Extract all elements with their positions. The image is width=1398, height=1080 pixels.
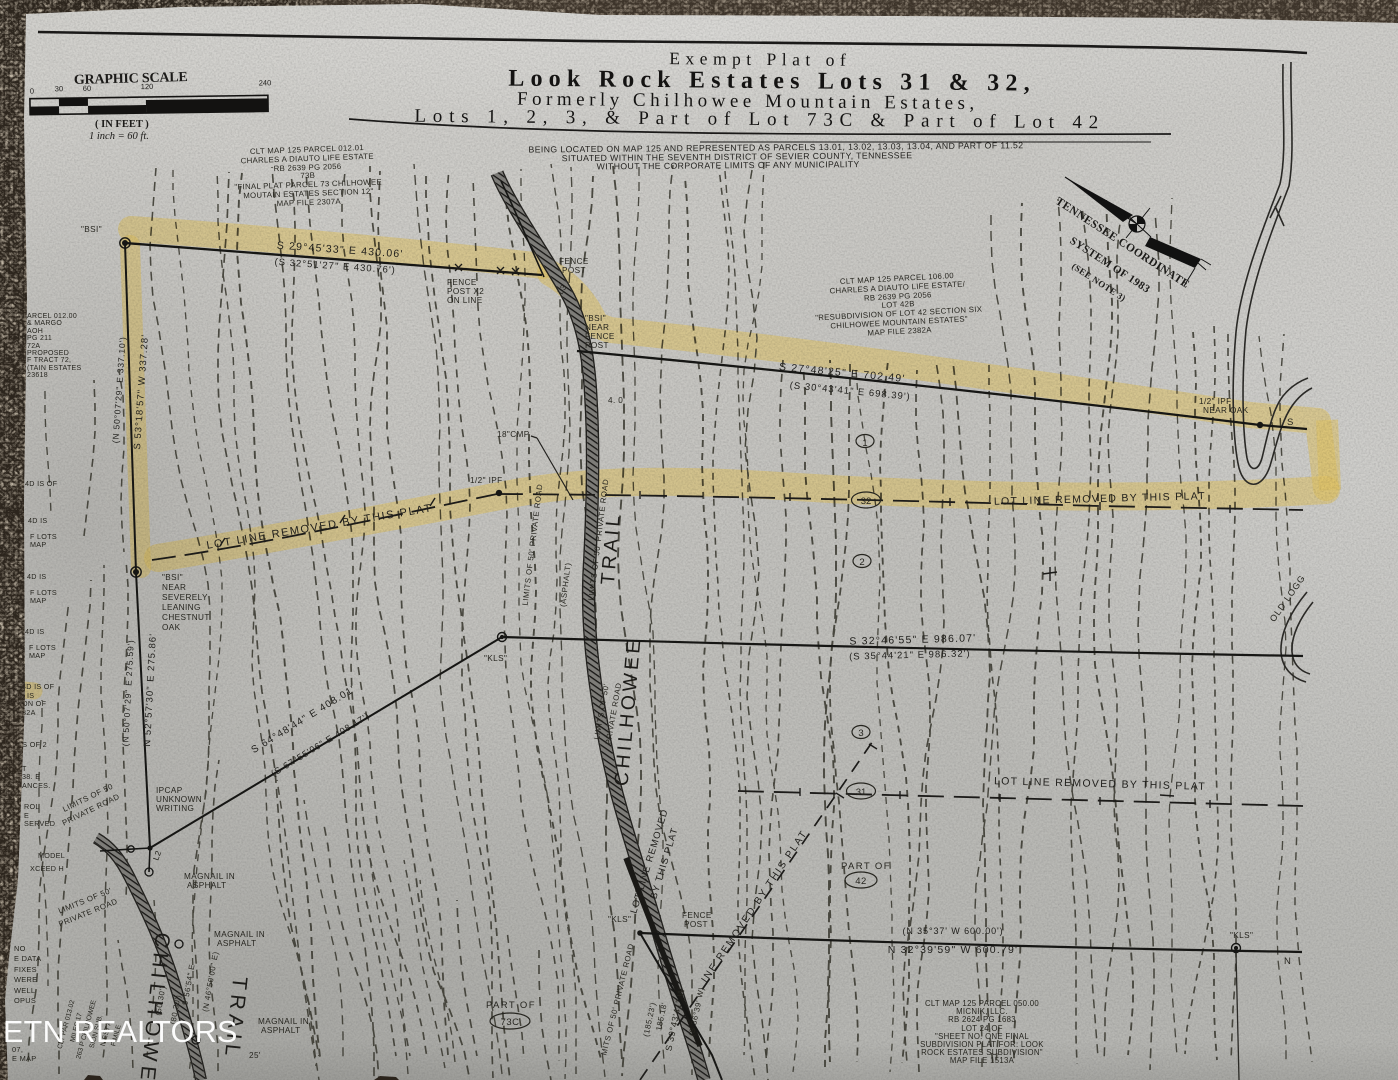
svg-text:ARCEL 012.00: ARCEL 012.00 bbox=[27, 313, 77, 320]
svg-text:NO: NO bbox=[14, 944, 26, 953]
svg-text:& MARGO: & MARGO bbox=[27, 320, 62, 327]
svg-text:NEAR: NEAR bbox=[585, 323, 609, 332]
svg-text:1 inch = 60 ft.: 1 inch = 60 ft. bbox=[89, 131, 149, 142]
svg-text:FENCE: FENCE bbox=[559, 257, 589, 266]
svg-text:S: S bbox=[1287, 417, 1294, 428]
svg-text:PART OF: PART OF bbox=[486, 1000, 536, 1011]
svg-text:MAP: MAP bbox=[30, 596, 46, 605]
svg-text:"KLS": "KLS" bbox=[608, 915, 631, 924]
svg-text:( IN FEET ): ( IN FEET ) bbox=[95, 119, 149, 130]
svg-text:ON LINE: ON LINE bbox=[447, 296, 483, 305]
svg-text:RB 2624 PG 1683: RB 2624 PG 1683 bbox=[948, 1015, 1016, 1024]
svg-text:MAP: MAP bbox=[30, 540, 46, 549]
svg-text:ON OF: ON OF bbox=[22, 699, 47, 708]
svg-text:IS OF 2: IS OF 2 bbox=[20, 740, 47, 749]
svg-text:18"CMP: 18"CMP bbox=[497, 430, 530, 439]
svg-text:2: 2 bbox=[859, 557, 864, 568]
svg-text:AOH: AOH bbox=[27, 328, 43, 335]
svg-text:73B: 73B bbox=[300, 171, 315, 181]
svg-text:FIXES: FIXES bbox=[14, 965, 37, 974]
svg-text:POST: POST bbox=[562, 266, 586, 275]
svg-text:3: 3 bbox=[858, 728, 863, 739]
svg-text:31: 31 bbox=[856, 787, 867, 798]
svg-text:"KLS": "KLS" bbox=[1230, 931, 1253, 940]
svg-text:WELL: WELL bbox=[14, 986, 35, 995]
svg-text:POST X2: POST X2 bbox=[447, 287, 484, 296]
svg-text:E DATA: E DATA bbox=[14, 954, 41, 963]
svg-text:F TRACT 72,: F TRACT 72, bbox=[27, 357, 71, 364]
svg-text:73C: 73C bbox=[501, 1017, 520, 1028]
svg-text:ASPHALT: ASPHALT bbox=[261, 1026, 301, 1035]
svg-text:240: 240 bbox=[259, 78, 272, 87]
svg-text:4D IS: 4D IS bbox=[28, 516, 47, 525]
svg-text:120: 120 bbox=[141, 82, 154, 91]
svg-text:SERVED: SERVED bbox=[24, 819, 55, 828]
svg-text:NEAR OAK: NEAR OAK bbox=[1203, 406, 1249, 415]
svg-text:ETN REALTORS: ETN REALTORS bbox=[3, 1015, 238, 1049]
svg-text:N 32°39'59" W 600.79': N 32°39'59" W 600.79' bbox=[888, 944, 1019, 956]
svg-text:38. E: 38. E bbox=[22, 772, 40, 781]
svg-text:SEVERELY: SEVERELY bbox=[162, 593, 208, 602]
svg-text:ANCES.: ANCES. bbox=[22, 781, 51, 790]
svg-text:OPUS: OPUS bbox=[14, 996, 36, 1005]
svg-text:FENCE: FENCE bbox=[682, 911, 712, 920]
svg-text:4D IS OF: 4D IS OF bbox=[25, 479, 58, 488]
svg-text:4. 0': 4. 0' bbox=[608, 396, 625, 405]
svg-text:4D IS: 4D IS bbox=[27, 572, 46, 581]
svg-text:NEAR: NEAR bbox=[162, 583, 186, 592]
svg-text:0: 0 bbox=[30, 87, 34, 96]
svg-text:PROPOSED: PROPOSED bbox=[27, 350, 69, 357]
svg-text:ASPHALT: ASPHALT bbox=[217, 939, 257, 948]
svg-text:IPCAP: IPCAP bbox=[156, 786, 183, 795]
svg-text:POST: POST bbox=[585, 341, 609, 350]
svg-text:"KLS": "KLS" bbox=[484, 654, 507, 663]
svg-text:"BSI": "BSI" bbox=[162, 573, 183, 582]
svg-text:WERE: WERE bbox=[14, 975, 37, 984]
svg-text:XCEED H: XCEED H bbox=[30, 864, 64, 873]
svg-text:CHESTNUT: CHESTNUT bbox=[162, 613, 210, 622]
svg-text:ASPHALT: ASPHALT bbox=[187, 881, 227, 890]
svg-text:32: 32 bbox=[861, 496, 872, 507]
svg-text:WRITING: WRITING bbox=[156, 804, 194, 813]
svg-text:FENCE: FENCE bbox=[447, 278, 477, 287]
svg-text:23618: 23618 bbox=[27, 372, 48, 379]
svg-text:4D IS OF: 4D IS OF bbox=[22, 682, 55, 691]
svg-text:OAK: OAK bbox=[162, 623, 181, 632]
svg-text:1/2" IPF: 1/2" IPF bbox=[470, 476, 503, 485]
svg-text:POST: POST bbox=[684, 920, 708, 929]
svg-text:42: 42 bbox=[855, 876, 867, 887]
svg-text:MAGNAIL IN: MAGNAIL IN bbox=[258, 1017, 309, 1026]
svg-text:ROL: ROL bbox=[24, 802, 40, 811]
svg-text:1/2" IPF: 1/2" IPF bbox=[1199, 397, 1232, 406]
svg-text:60: 60 bbox=[83, 84, 91, 93]
svg-text:4D IS: 4D IS bbox=[25, 627, 44, 636]
svg-text:N: N bbox=[1284, 956, 1291, 967]
svg-text:30: 30 bbox=[55, 84, 63, 93]
svg-text:"BSI": "BSI" bbox=[81, 225, 102, 234]
svg-text:1: 1 bbox=[862, 438, 867, 449]
svg-text:LEANING: LEANING bbox=[162, 603, 201, 612]
svg-text:72A: 72A bbox=[27, 343, 40, 350]
svg-text:MAP: MAP bbox=[29, 651, 45, 660]
svg-text:PG 211: PG 211 bbox=[27, 335, 52, 342]
svg-text:FENCE: FENCE bbox=[585, 332, 615, 341]
svg-text:MAGNAIL IN: MAGNAIL IN bbox=[184, 872, 235, 881]
svg-text:UNKNOWN: UNKNOWN bbox=[156, 795, 202, 804]
svg-text:MODEL: MODEL bbox=[38, 851, 65, 860]
svg-text:MAGNAIL IN: MAGNAIL IN bbox=[214, 930, 265, 939]
svg-text:PART OF: PART OF bbox=[841, 861, 891, 872]
svg-text:(TAIN ESTATES: (TAIN ESTATES bbox=[27, 365, 81, 372]
svg-text:"BSI": "BSI" bbox=[585, 314, 606, 323]
svg-text:(N 35°37' W 600.00'): (N 35°37' W 600.00') bbox=[902, 926, 1003, 936]
